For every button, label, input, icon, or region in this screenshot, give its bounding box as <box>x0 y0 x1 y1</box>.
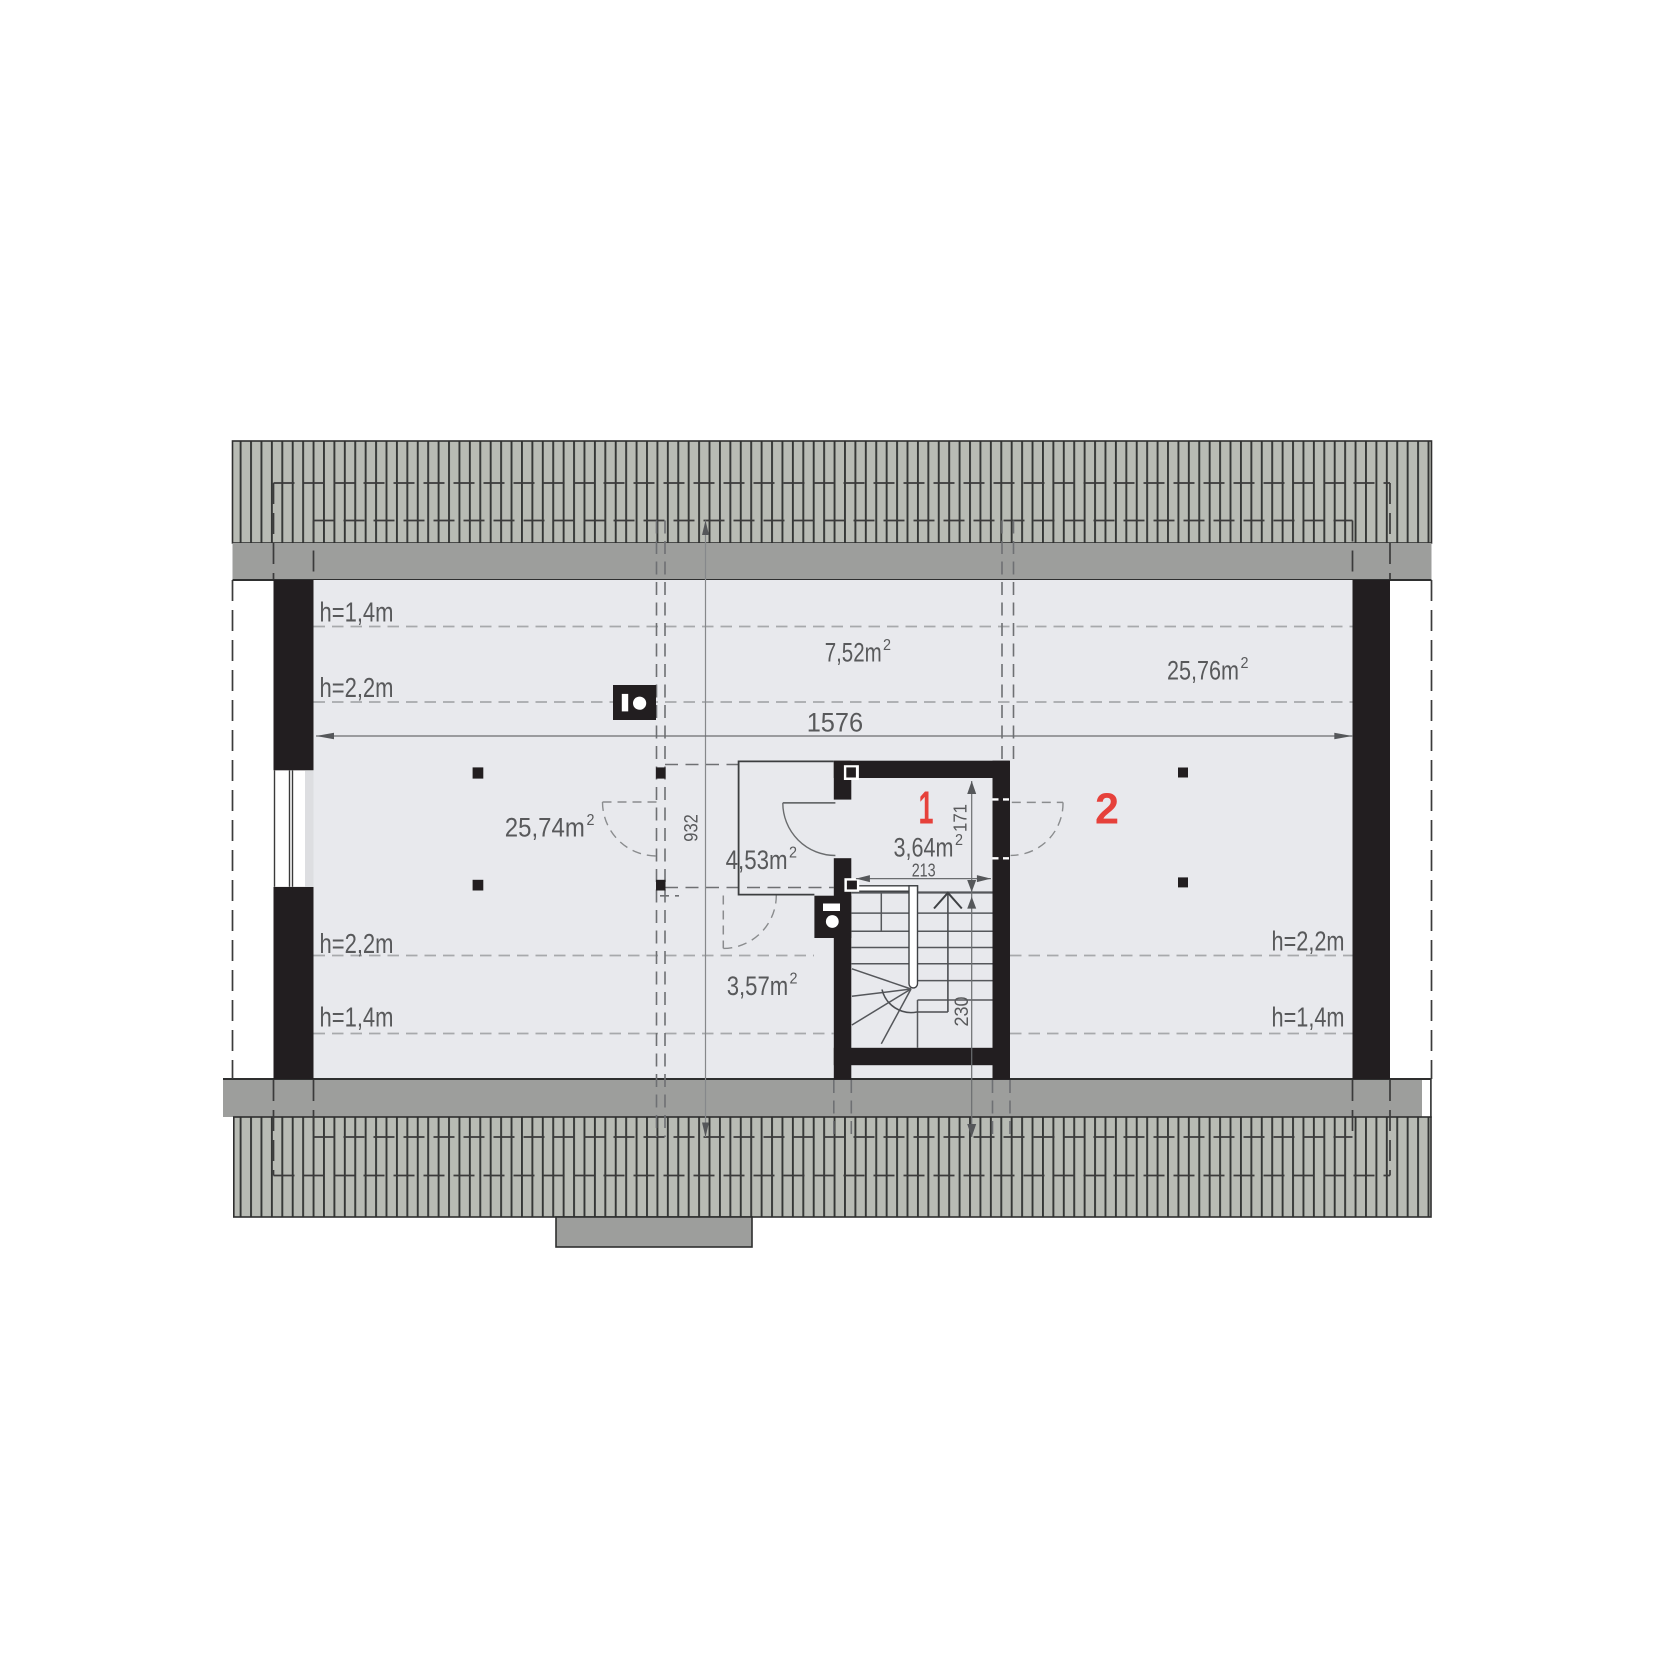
svg-text:h=2,2m: h=2,2m <box>320 672 394 703</box>
svg-text:213: 213 <box>912 861 936 881</box>
svg-text:3,57m: 3,57m <box>727 971 789 1001</box>
svg-text:2: 2 <box>955 832 963 849</box>
svg-text:4,53m: 4,53m <box>726 845 788 875</box>
svg-text:171: 171 <box>951 804 971 832</box>
svg-text:1576: 1576 <box>807 708 864 738</box>
svg-text:230: 230 <box>952 997 973 1027</box>
svg-text:25,76m: 25,76m <box>1167 656 1239 686</box>
svg-text:2: 2 <box>587 812 595 829</box>
svg-text:2: 2 <box>883 637 891 654</box>
svg-text:h=1,4m: h=1,4m <box>320 1002 394 1033</box>
svg-text:7,52m: 7,52m <box>825 638 882 668</box>
svg-text:2: 2 <box>1241 655 1249 672</box>
svg-text:2: 2 <box>790 971 798 988</box>
svg-text:h=1,4m: h=1,4m <box>320 597 394 628</box>
svg-text:2: 2 <box>1095 785 1119 834</box>
svg-text:1: 1 <box>919 782 934 834</box>
svg-text:932: 932 <box>682 814 703 842</box>
svg-text:25,74m: 25,74m <box>505 813 585 843</box>
svg-text:h=2,2m: h=2,2m <box>320 928 394 959</box>
svg-text:h=1,4m: h=1,4m <box>1272 1002 1345 1033</box>
svg-text:3,64m: 3,64m <box>894 833 954 863</box>
svg-text:2: 2 <box>789 845 797 862</box>
svg-text:h=2,2m: h=2,2m <box>1272 926 1345 957</box>
